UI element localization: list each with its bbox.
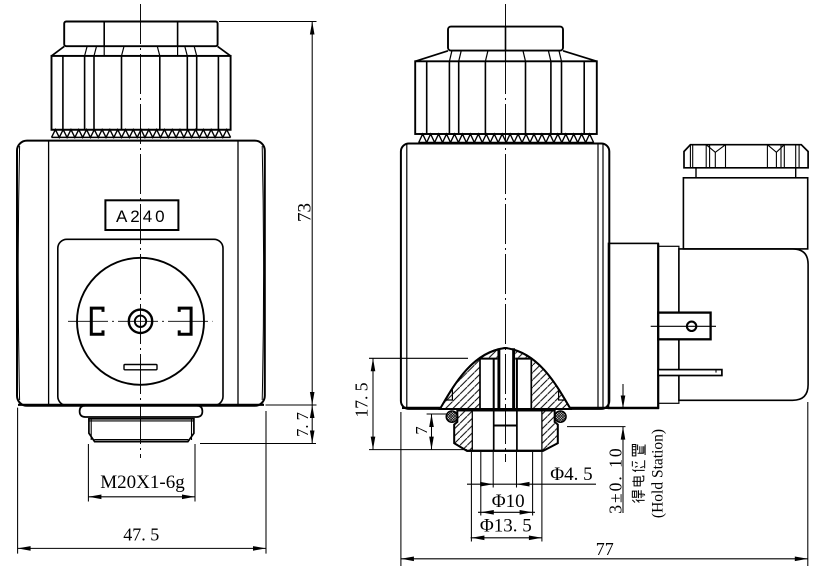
svg-text:73: 73 (295, 203, 316, 222)
svg-text:47. 5: 47. 5 (123, 525, 159, 545)
svg-text:3±0. 10: 3±0. 10 (606, 446, 626, 513)
svg-text:7: 7 (412, 426, 431, 434)
svg-text:Φ10: Φ10 (492, 491, 525, 512)
svg-text:M20X1-6g: M20X1-6g (100, 472, 185, 493)
svg-text:17. 5: 17. 5 (352, 382, 372, 417)
svg-text:A240: A240 (116, 207, 168, 226)
svg-text:7. 7: 7. 7 (293, 412, 312, 437)
svg-text:Φ13. 5: Φ13. 5 (480, 516, 532, 537)
svg-text:(Hold Station): (Hold Station) (650, 429, 667, 518)
svg-text:77: 77 (596, 539, 614, 559)
svg-text:Φ4. 5: Φ4. 5 (550, 464, 592, 485)
